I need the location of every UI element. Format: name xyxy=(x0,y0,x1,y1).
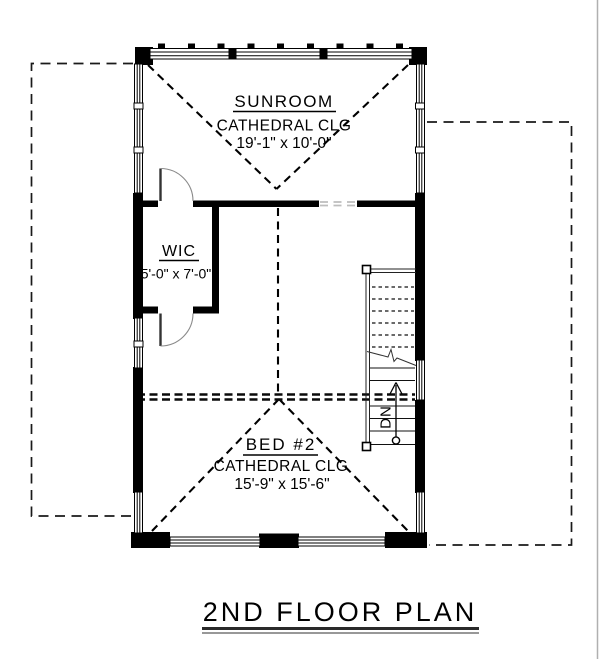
wic-name-label: WIC xyxy=(162,243,196,260)
wic-bottom-door-swing xyxy=(161,314,194,347)
stair-dn-label: DN xyxy=(378,405,395,429)
window-mullion xyxy=(416,147,425,153)
railing-post-bottom xyxy=(363,443,371,451)
staircase: DN xyxy=(363,266,417,451)
bed2-name-label: BED #2 xyxy=(246,435,317,454)
wic-right-wall xyxy=(212,201,219,314)
stair-break-line xyxy=(367,350,416,366)
window-mullion xyxy=(416,103,425,109)
sunroom-window-band xyxy=(150,49,412,60)
sheet-title: 2ND FLOOR PLAN xyxy=(202,597,479,633)
wic-dims-label: 5'-0" x 7'-0" xyxy=(141,266,212,282)
interior-wall-opening xyxy=(320,202,357,206)
window-mullion xyxy=(134,147,143,153)
stair-treads-dashed xyxy=(372,287,414,347)
overhang-right-outline xyxy=(427,122,572,545)
ceiling-break-double-dash xyxy=(137,395,415,400)
rafter-ticks xyxy=(158,44,403,49)
sunroom-dims-label: 19'-1" x 10'-0" xyxy=(236,135,331,152)
window-mullion xyxy=(134,103,143,109)
corner-bottom-left xyxy=(131,532,170,548)
window-mullion xyxy=(229,49,236,60)
window-mullion xyxy=(320,49,327,60)
overhang-left-outline xyxy=(32,64,134,517)
floor-plan-sheet: DN SUNROOM CATHEDRAL CLG 19'-1" x 10'-0"… xyxy=(0,0,600,659)
stair-window xyxy=(417,360,425,400)
bed2-dims-label: 15'-9" x 15'-6" xyxy=(234,476,329,493)
sunroom-ceiling-label: CATHEDRAL CLG xyxy=(217,118,352,135)
sunroom-name-label: SUNROOM xyxy=(234,92,333,111)
page-title: 2ND FLOOR PLAN xyxy=(203,597,478,627)
window-mullion xyxy=(134,341,143,347)
floor-plan-drawing: DN SUNROOM CATHEDRAL CLG 19'-1" x 10'-0"… xyxy=(0,0,600,659)
wic-top-door-swing xyxy=(161,169,194,202)
corner-bottom-right xyxy=(385,532,427,548)
railing-post-top xyxy=(363,266,371,274)
bed2-ceiling-label: CATHEDRAL CLG xyxy=(214,458,349,475)
